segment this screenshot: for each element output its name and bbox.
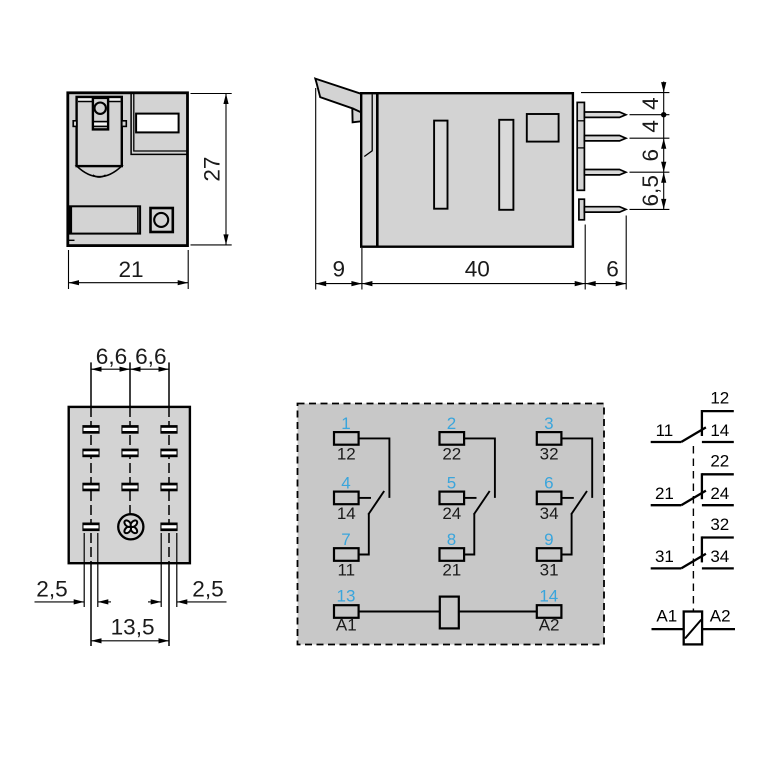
svg-text:A1: A1: [336, 616, 357, 635]
svg-text:6: 6: [606, 257, 619, 282]
svg-text:14: 14: [539, 586, 558, 605]
svg-text:8: 8: [447, 530, 456, 549]
svg-text:6,5: 6,5: [638, 175, 663, 206]
svg-text:11: 11: [337, 561, 355, 580]
svg-text:A2: A2: [710, 606, 731, 625]
svg-text:2: 2: [447, 414, 456, 433]
svg-text:9: 9: [544, 530, 553, 549]
svg-text:6: 6: [544, 474, 553, 493]
svg-text:21: 21: [442, 561, 461, 580]
svg-text:24: 24: [710, 484, 729, 503]
svg-text:13: 13: [337, 586, 356, 605]
svg-text:31: 31: [540, 561, 559, 580]
svg-text:2,5: 2,5: [36, 576, 67, 601]
svg-text:7: 7: [341, 530, 350, 549]
svg-text:9: 9: [333, 257, 346, 282]
svg-text:40: 40: [465, 257, 490, 282]
svg-text:21: 21: [655, 484, 674, 503]
svg-text:32: 32: [710, 515, 729, 534]
svg-text:14: 14: [337, 504, 356, 523]
svg-text:6,6: 6,6: [96, 344, 127, 369]
svg-text:3: 3: [544, 414, 553, 433]
svg-text:34: 34: [540, 504, 559, 523]
svg-text:22: 22: [710, 452, 729, 471]
svg-text:4: 4: [638, 97, 663, 110]
svg-text:12: 12: [710, 388, 729, 407]
svg-text:12: 12: [337, 444, 356, 463]
svg-text:4: 4: [341, 474, 350, 493]
svg-text:22: 22: [442, 444, 461, 463]
svg-text:31: 31: [655, 547, 674, 566]
svg-text:5: 5: [447, 474, 456, 493]
svg-text:A2: A2: [539, 616, 560, 635]
svg-text:2,5: 2,5: [192, 576, 223, 601]
svg-text:14: 14: [710, 421, 729, 440]
svg-text:4: 4: [638, 120, 663, 133]
svg-text:11: 11: [656, 421, 674, 440]
svg-text:6: 6: [638, 149, 663, 162]
svg-text:1: 1: [341, 414, 350, 433]
svg-text:32: 32: [540, 444, 559, 463]
svg-text:21: 21: [118, 257, 143, 282]
svg-text:13,5: 13,5: [111, 615, 155, 640]
svg-text:A1: A1: [656, 606, 677, 625]
svg-text:24: 24: [442, 504, 461, 523]
svg-text:6,6: 6,6: [135, 344, 166, 369]
svg-text:34: 34: [710, 547, 729, 566]
svg-text:27: 27: [199, 157, 224, 182]
